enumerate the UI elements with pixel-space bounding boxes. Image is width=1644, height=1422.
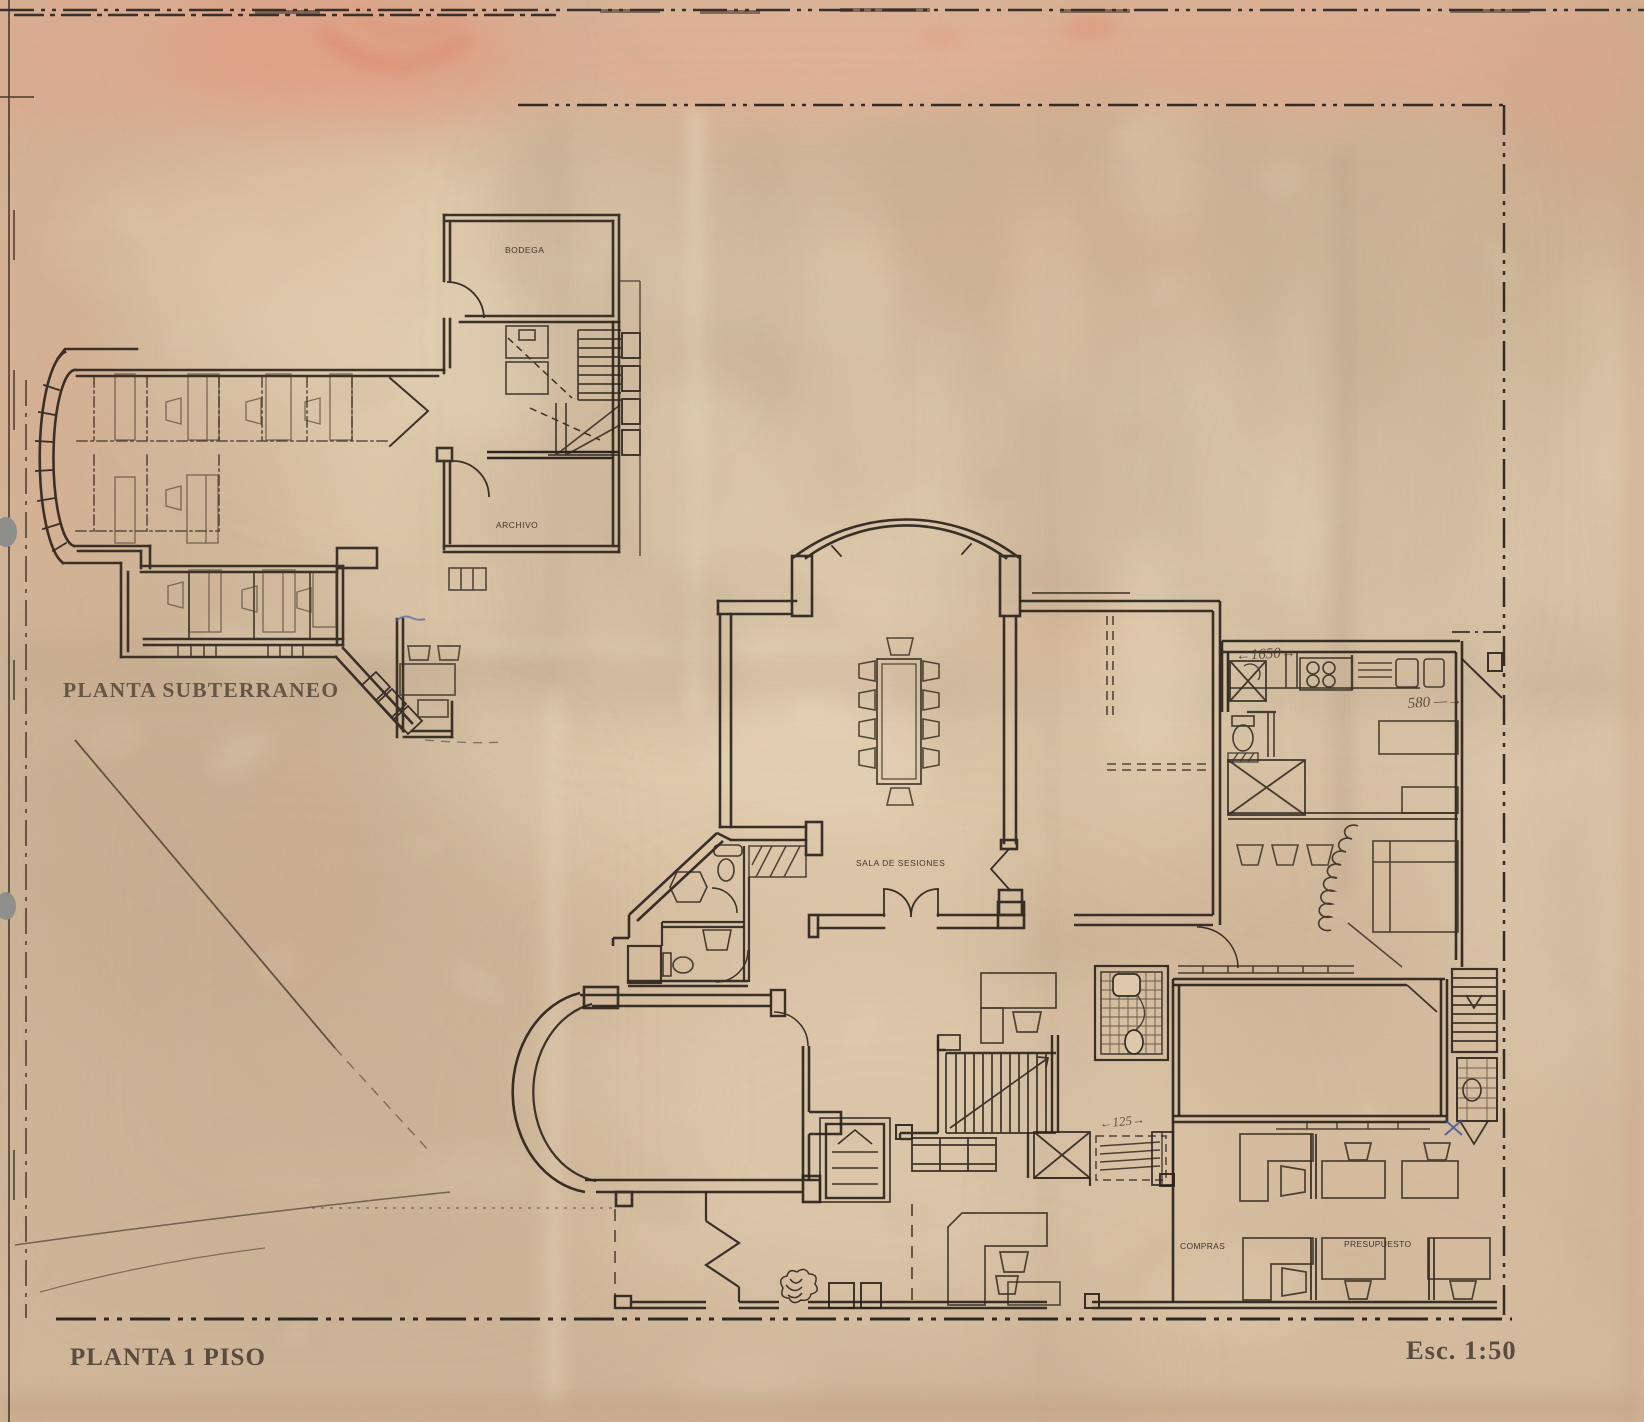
svg-text:COMPRAS: COMPRAS: [1180, 1241, 1225, 1251]
svg-text:PRESUPUESTO: PRESUPUESTO: [1344, 1239, 1411, 1249]
svg-text:SALA DE SESIONES: SALA DE SESIONES: [856, 858, 945, 868]
svg-text:BODEGA: BODEGA: [505, 245, 544, 255]
svg-text:ARCHIVO: ARCHIVO: [496, 520, 538, 530]
svg-text:PLANTA 1 PISO: PLANTA 1 PISO: [70, 1344, 266, 1371]
svg-text:PLANTA SUBTERRANEO: PLANTA SUBTERRANEO: [63, 678, 339, 702]
svg-text:←1650→: ←1650→: [1235, 645, 1296, 664]
svg-text:Esc. 1:50: Esc. 1:50: [1406, 1335, 1517, 1365]
